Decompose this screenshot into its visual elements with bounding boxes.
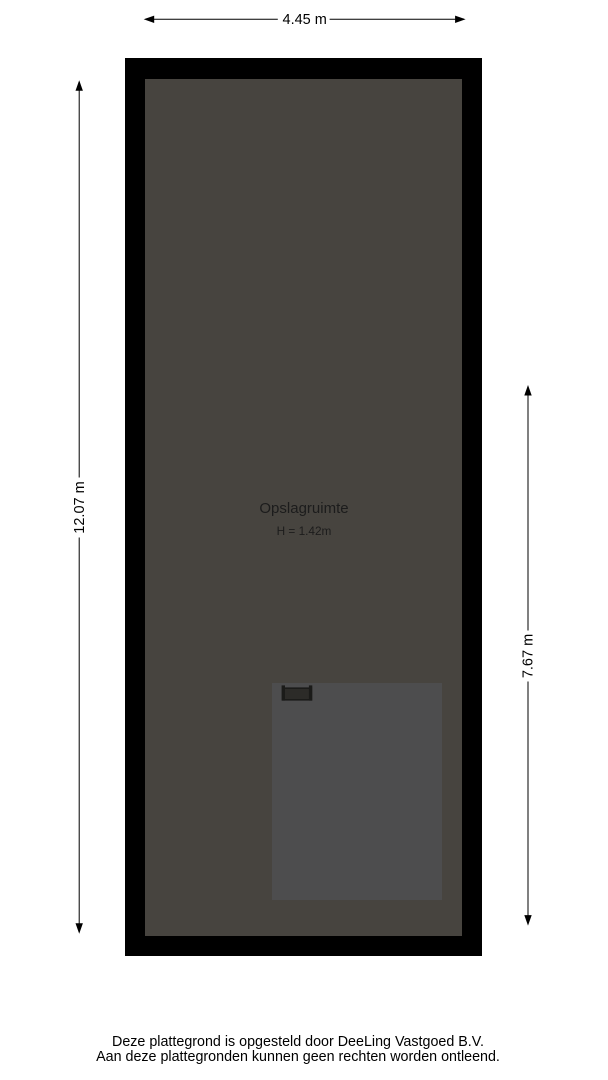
svg-text:7.67 m: 7.67 m <box>521 634 537 678</box>
svg-text:12.07 m: 12.07 m <box>72 481 88 533</box>
svg-text:4.45 m: 4.45 m <box>283 12 327 28</box>
